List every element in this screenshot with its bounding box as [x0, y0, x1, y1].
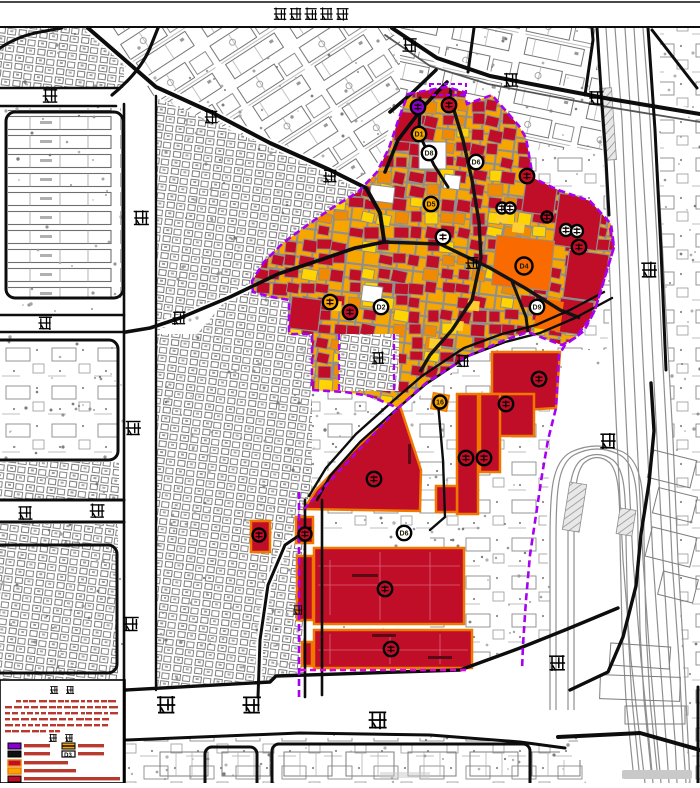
svg-text:D4: D4: [520, 264, 529, 271]
svg-text:16: 16: [436, 400, 444, 407]
svg-text:D9: D9: [533, 305, 542, 312]
svg-text:D6: D6: [472, 160, 481, 167]
svg-text:D6: D6: [400, 531, 409, 538]
svg-text:D5: D5: [427, 202, 436, 209]
svg-text:D2: D2: [377, 305, 386, 312]
svg-text:D3: D3: [64, 753, 72, 759]
svg-text:D8: D8: [425, 151, 434, 158]
svg-text:D1: D1: [415, 132, 424, 139]
